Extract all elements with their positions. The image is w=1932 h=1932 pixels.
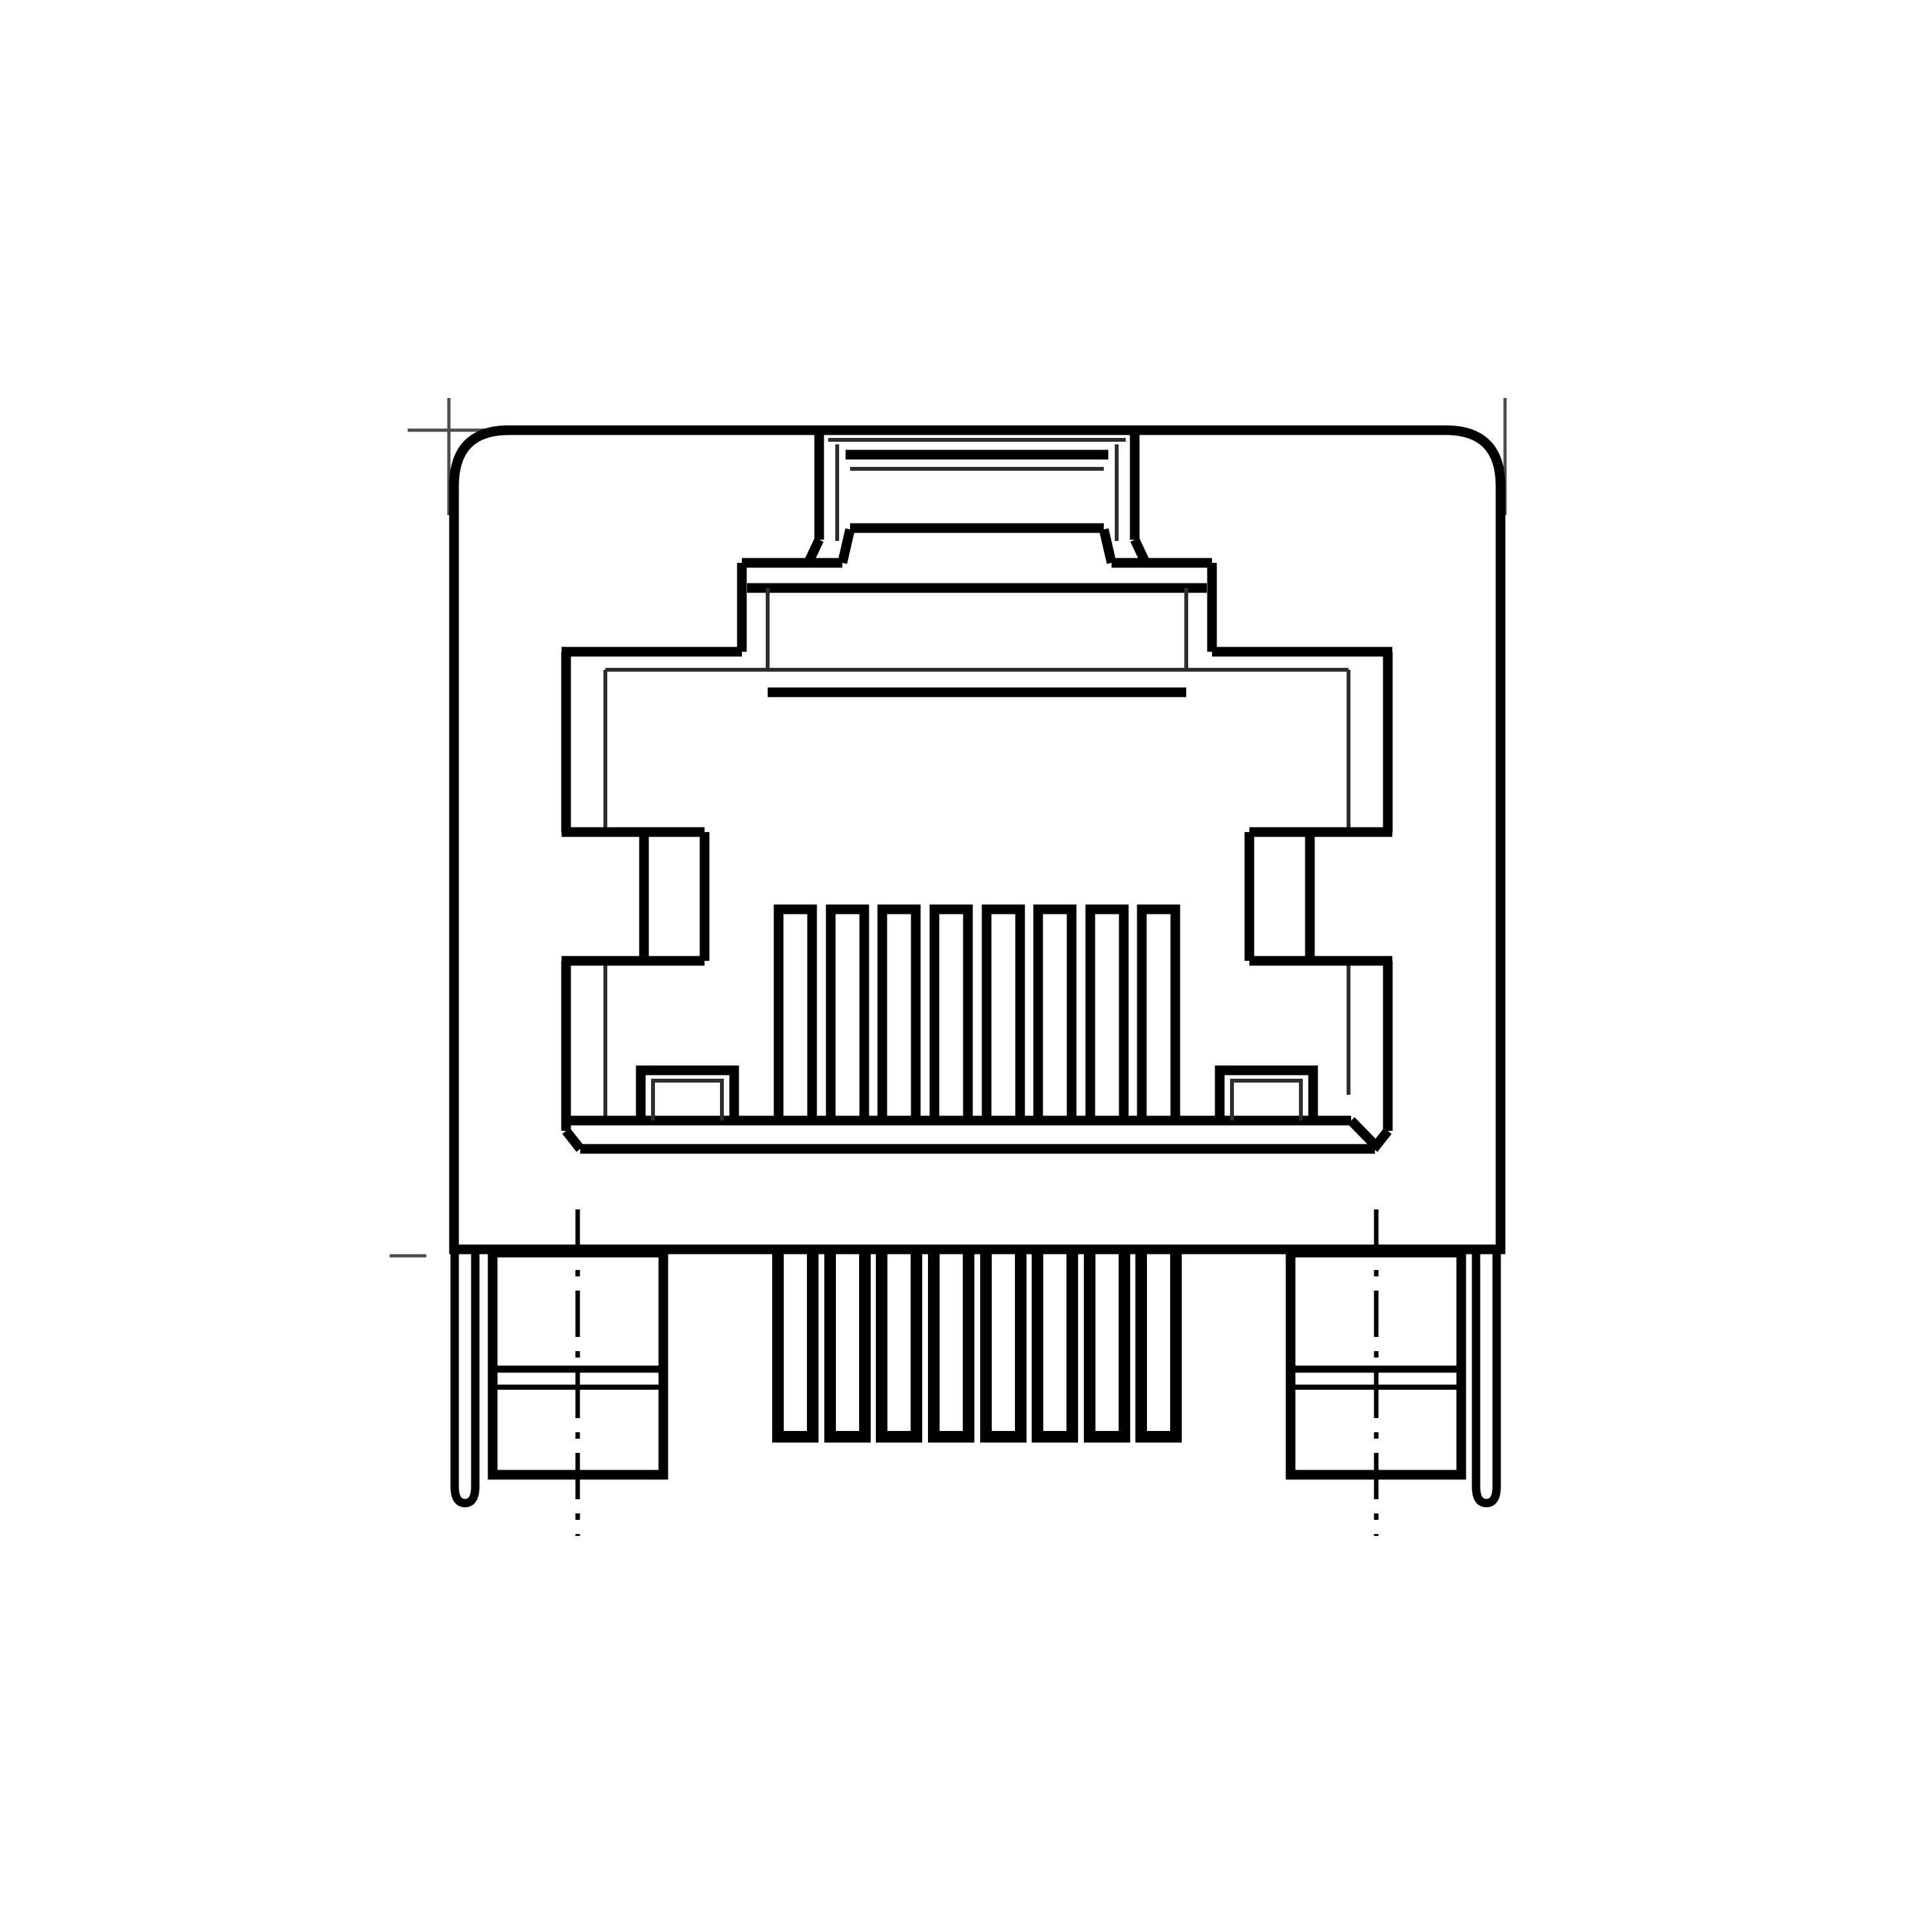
flange-leg-right [1476, 1252, 1497, 1503]
centerlines [578, 1209, 1376, 1536]
body-outline [454, 430, 1501, 1249]
solder-pin-2 [830, 1251, 865, 1437]
solder-pin-3 [882, 1251, 916, 1437]
solder-pin-1 [778, 1251, 813, 1437]
mount-block-left [493, 1253, 663, 1475]
solder-pin-5 [986, 1251, 1021, 1437]
solder-pin-6 [1037, 1251, 1072, 1437]
solder-pin-4 [934, 1251, 969, 1437]
bottom-legs [455, 1251, 1497, 1503]
flange-leg-left [455, 1252, 475, 1503]
drawing-canvas [0, 0, 1932, 1932]
connector-body [454, 430, 1501, 1249]
rj45-front-view-drawing [0, 0, 1932, 1932]
solder-pin-8 [1141, 1251, 1176, 1437]
solder-pin-7 [1090, 1251, 1124, 1437]
mount-block-right [1291, 1253, 1461, 1475]
